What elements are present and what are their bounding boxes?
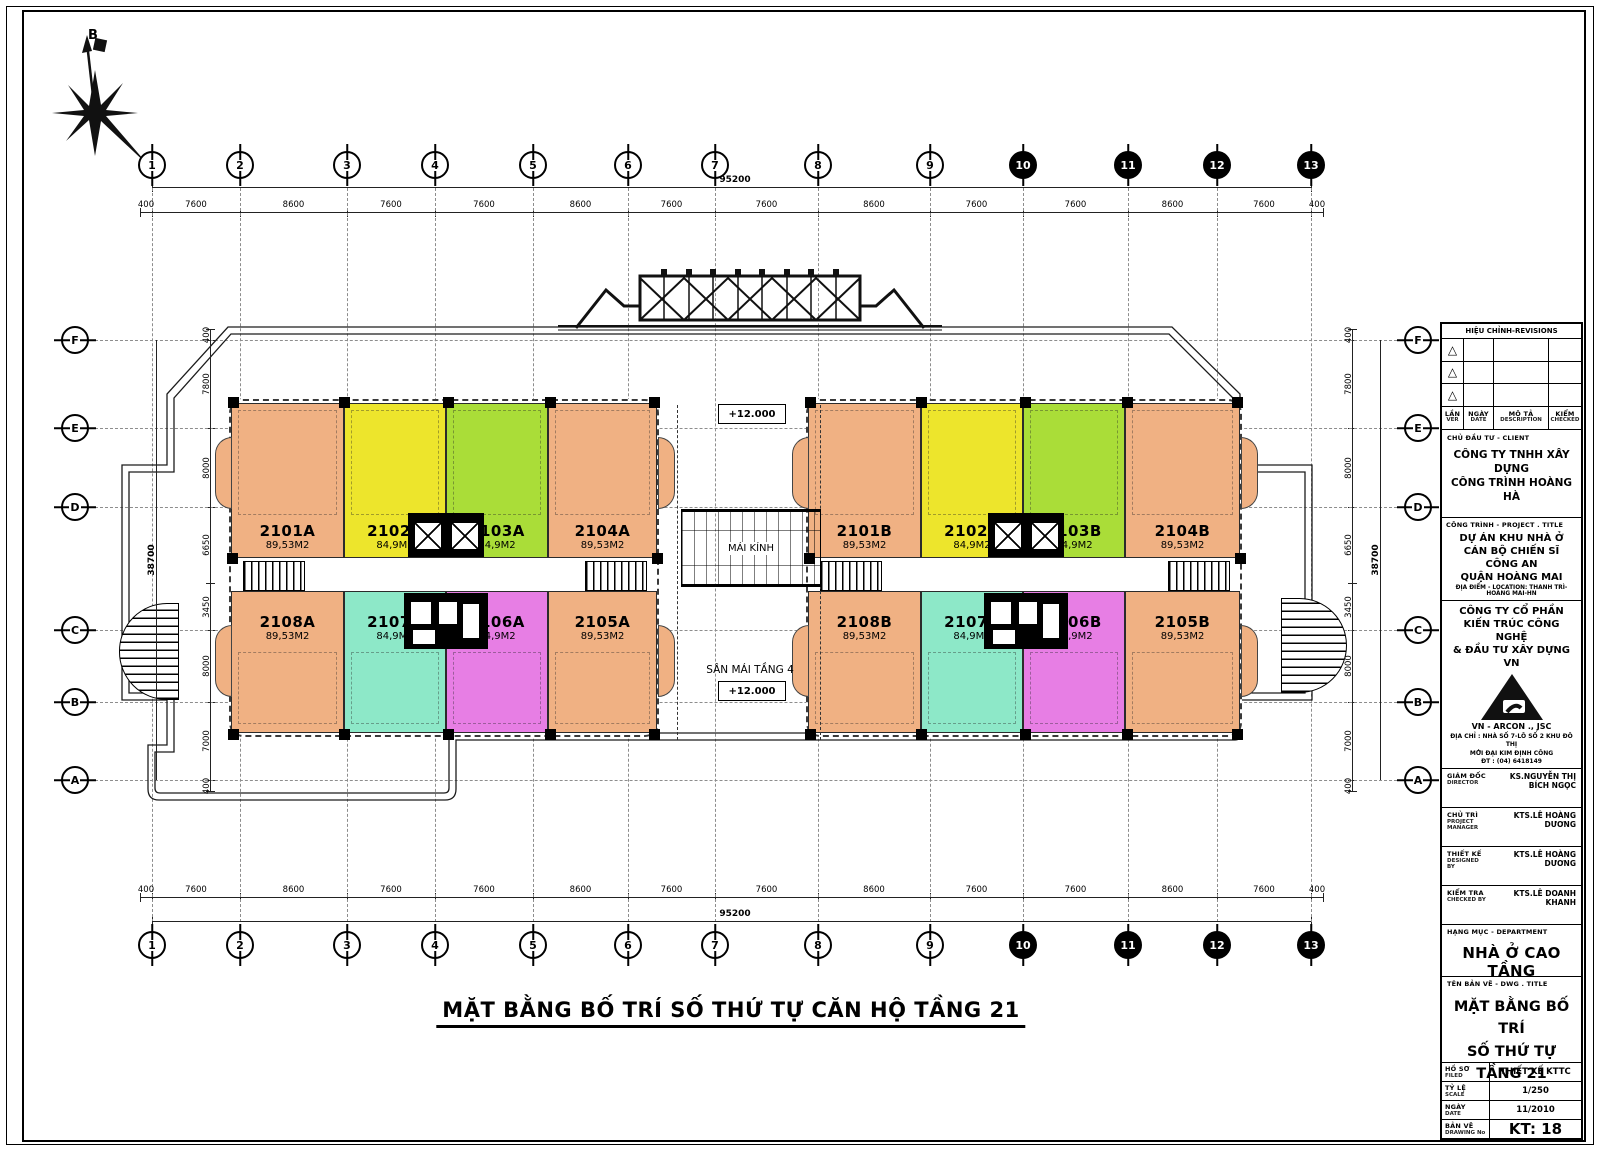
- unit-number: 2104A: [575, 523, 631, 540]
- bay-window: [792, 625, 809, 697]
- grid-bubble-2: 2: [226, 151, 254, 179]
- grid-bubble-3: 3: [333, 931, 361, 959]
- north-label: B: [88, 28, 98, 43]
- footer-drawing-no-value: KT: 18: [1490, 1120, 1581, 1138]
- grid-bubble-label: C: [1413, 625, 1423, 636]
- revision-triangle-icon: △: [1442, 384, 1464, 406]
- revision-table: HIỆU CHỈNH-REVISIONS △ △ △ LẦNVER NGÀYDA…: [1442, 324, 1581, 430]
- dimension-label: 7600: [185, 200, 207, 210]
- service-core: [984, 593, 1068, 649]
- dimension-label: 8000: [202, 655, 212, 677]
- grid-bubble-label: A: [70, 775, 81, 786]
- bay-window: [215, 625, 232, 697]
- revision-row: △: [1442, 362, 1581, 385]
- grid-bubble-label: 10: [1014, 940, 1031, 951]
- architect-address: MỚI ĐẠI KIM ĐỊNH CÔNG: [1446, 750, 1577, 758]
- column-marker: [228, 397, 239, 408]
- unit-number: 2105B: [1155, 614, 1211, 631]
- grid-bubble-A: A: [61, 766, 89, 794]
- column-marker: [1122, 729, 1133, 740]
- revision-row: △: [1442, 339, 1581, 362]
- department-label: HẠNG MỤC - DEPARTMENT: [1447, 928, 1576, 936]
- grid-bubble-2: 2: [226, 931, 254, 959]
- grid-bubble-label: B: [70, 697, 80, 708]
- role-director-name: KS.NGUYỄN THỊ BÍCH NGỌC: [1488, 772, 1576, 804]
- dimension-label: 7600: [756, 885, 778, 895]
- grid-bubble-label: 2: [235, 940, 245, 951]
- grid-bubble-13: 13: [1297, 151, 1325, 179]
- service-room: [412, 629, 436, 645]
- glass-roof: MÁI KÍNH: [681, 509, 821, 587]
- north-arrow-icon: [30, 25, 160, 170]
- grid-bubble-label: 1: [147, 940, 157, 951]
- footer-date-value: 11/2010: [1490, 1101, 1581, 1119]
- dimension-label: 3450: [202, 596, 212, 618]
- corridor-stair: [1168, 561, 1230, 591]
- grid-bubble-1: 1: [138, 151, 166, 179]
- glass-roof-line: [682, 565, 820, 566]
- dimension-label: 6650: [202, 534, 212, 556]
- grid-bubble-B: B: [61, 688, 89, 716]
- column-marker: [652, 553, 663, 564]
- department-value: NHÀ Ở CAO TẦNG: [1447, 944, 1576, 980]
- dimension-label: 6650: [1344, 534, 1354, 556]
- dimension-label: 8600: [863, 885, 885, 895]
- apartment-unit-2101B: 2101B89,53M2: [808, 403, 921, 558]
- grid-bubble-label: 7: [710, 940, 720, 951]
- drawing-title: MẶT BẰNG BỐ TRÍ SỐ THỨ TỰ CĂN HỘ TẦNG 21: [436, 998, 1025, 1028]
- grid-bubble-label: D: [69, 502, 80, 513]
- grid-bubble-label: 13: [1302, 160, 1319, 171]
- grid-bubble-label: F: [70, 335, 80, 346]
- level-marker-upper: +12.000: [718, 404, 786, 424]
- dimension-label: 7600: [1065, 200, 1087, 210]
- footer-date-row: NGÀYDATE 11/2010: [1442, 1101, 1581, 1120]
- roof-truss: [558, 268, 942, 334]
- grid-bubble-label: 5: [528, 940, 538, 951]
- dimension-label: 8000: [202, 457, 212, 479]
- dimension-label: 7600: [661, 200, 683, 210]
- dimension-line: [140, 897, 1323, 898]
- client-label: CHỦ ĐẦU TƯ - CLIENT: [1447, 434, 1576, 442]
- dimension-label: 8600: [570, 200, 592, 210]
- dimension-label: 7600: [756, 200, 778, 210]
- grid-bubble-label: F: [1413, 335, 1423, 346]
- elevator-shaft: [1030, 521, 1060, 551]
- grid-bubble-label: 3: [342, 160, 352, 171]
- unit-area: 89,53M2: [266, 631, 310, 643]
- unit-area: 89,53M2: [266, 540, 310, 552]
- grid-bubble-D: D: [1404, 493, 1432, 521]
- grid-bubble-4: 4: [421, 931, 449, 959]
- dimension-label: 400: [1344, 326, 1354, 342]
- grid-bubble-label: 11: [1119, 160, 1136, 171]
- grid-bubble-A: A: [1404, 766, 1432, 794]
- dimension-label: 400: [202, 326, 212, 342]
- company-logo: [1481, 674, 1543, 720]
- apartment-unit-2108A: 2108A89,53M2: [231, 591, 344, 733]
- column-marker: [649, 397, 660, 408]
- dimension-label: 8600: [1162, 200, 1184, 210]
- grid-bubble-E: E: [61, 414, 89, 442]
- dimension-label: 3450: [1344, 596, 1354, 618]
- client-section: CHỦ ĐẦU TƯ - CLIENT CÔNG TY TNHH XÂY DỰN…: [1442, 430, 1581, 518]
- elevator-shaft: [993, 521, 1023, 551]
- grid-bubble-label: 4: [430, 160, 440, 171]
- grid-bubble-label: 13: [1302, 940, 1319, 951]
- architect-name: CÔNG TY CỔ PHẦN: [1446, 605, 1577, 618]
- column-marker: [443, 729, 454, 740]
- unit-number: 2105A: [575, 614, 631, 631]
- role-designer: THIẾT KẾDESIGNED BY KTS.LÊ HOÀNG DƯƠNG: [1442, 847, 1581, 886]
- grid-bubble-label: 9: [925, 940, 935, 951]
- grid-bubble-5: 5: [519, 151, 547, 179]
- grid-bubble-label: 10: [1014, 160, 1031, 171]
- corridor-stair: [585, 561, 647, 591]
- column-marker: [545, 729, 556, 740]
- dimension-label: 400: [202, 777, 212, 793]
- grid-bubble-F: F: [61, 326, 89, 354]
- dimension-label: 8600: [863, 200, 885, 210]
- unit-area: 89,53M2: [843, 631, 887, 643]
- service-room: [462, 603, 480, 639]
- glass-roof-line: [682, 530, 820, 531]
- dimension-label: 7600: [185, 885, 207, 895]
- grid-bubble-label: 1: [147, 160, 157, 171]
- grid-bubble-label: 6: [623, 160, 633, 171]
- grid-bubble-5: 5: [519, 931, 547, 959]
- dimension-label: 400: [1344, 777, 1354, 793]
- architect-address: ĐT : (04) 6418149: [1446, 758, 1577, 766]
- grid-bubble-label: 9: [925, 160, 935, 171]
- grid-bubble-8: 8: [804, 151, 832, 179]
- revision-triangle-icon: △: [1442, 339, 1464, 361]
- footer-scale-row: TỶ LỆSCALE 1/250: [1442, 1082, 1581, 1101]
- dimension-label: 8600: [570, 885, 592, 895]
- unit-number: 2108B: [837, 614, 893, 631]
- dimension-line-total: [152, 187, 1311, 188]
- corridor-edge-left: [677, 405, 678, 740]
- dimension-label: 7600: [473, 885, 495, 895]
- grid-bubble-label: B: [1413, 697, 1423, 708]
- unit-area: 89,53M2: [1161, 540, 1205, 552]
- grid-bubble-11: 11: [1114, 151, 1142, 179]
- elevator-shaft: [413, 521, 443, 551]
- unit-number: 2101B: [837, 523, 893, 540]
- dimension-label: 7600: [1253, 200, 1275, 210]
- grid-bubble-10: 10: [1009, 151, 1037, 179]
- client-name: CÔNG TY TNHH XÂY DỰNG: [1447, 448, 1576, 476]
- grid-bubble-9: 9: [916, 931, 944, 959]
- dimension-line: [140, 212, 1323, 213]
- dimension-label: 7600: [1065, 885, 1087, 895]
- grid-bubble-C: C: [1404, 616, 1432, 644]
- column-marker: [916, 397, 927, 408]
- dimension-label: 7600: [966, 200, 988, 210]
- column-marker: [805, 397, 816, 408]
- dwg-label: TÊN BẢN VẼ - DWG . TITLE: [1447, 980, 1576, 988]
- unit-area: 89,53M2: [581, 540, 625, 552]
- service-room: [1042, 603, 1060, 639]
- grid-bubble-label: E: [1413, 423, 1423, 434]
- apartment-unit-2101A: 2101A89,53M2: [231, 403, 344, 558]
- grid-bubble-label: 12: [1208, 940, 1225, 951]
- dimension-label: 8000: [1344, 457, 1354, 479]
- elevator-core: [408, 513, 484, 557]
- project-name: DỰ ÁN KHU NHÀ Ở: [1446, 532, 1577, 545]
- role-project-manager-name: KTS.LÊ HOÀNG DƯƠNG: [1496, 811, 1576, 843]
- bay-window: [1241, 437, 1258, 509]
- grid-bubble-9: 9: [916, 151, 944, 179]
- role-checker-name: KTS.LÊ DOANH KHANH: [1488, 889, 1576, 921]
- unit-area: 89,53M2: [581, 631, 625, 643]
- grid-bubble-label: 8: [813, 940, 823, 951]
- grid-bubble-label: 11: [1119, 940, 1136, 951]
- bay-window: [658, 625, 675, 697]
- revision-triangle-icon: △: [1442, 362, 1464, 384]
- footer-file-value: THIẾT KẾ KTTC: [1490, 1063, 1581, 1081]
- column-marker: [1122, 397, 1133, 408]
- service-room: [410, 601, 432, 625]
- project-label: CÔNG TRÌNH - PROJECT . TITLE: [1446, 521, 1577, 529]
- project-section: CÔNG TRÌNH - PROJECT . TITLE DỰ ÁN KHU N…: [1442, 518, 1581, 602]
- dimension-label: 7600: [661, 885, 683, 895]
- dimension-label: 7600: [966, 885, 988, 895]
- dimension-label: 400: [1309, 200, 1325, 210]
- bay-window: [215, 437, 232, 509]
- project-location: ĐỊA ĐIỂM - LOCATION: THANH TRÌ-HOÀNG MAI…: [1446, 585, 1577, 597]
- grid-bubble-6: 6: [614, 931, 642, 959]
- grid-bubble-10: 10: [1009, 931, 1037, 959]
- revision-row: △: [1442, 384, 1581, 407]
- grid-bubble-12: 12: [1203, 151, 1231, 179]
- grid-bubble-3: 3: [333, 151, 361, 179]
- dimension-label: 95200: [719, 175, 750, 185]
- level-marker-lower: +12.000: [718, 681, 786, 701]
- service-core: [404, 593, 488, 649]
- grid-bubble-label: D: [1412, 502, 1423, 513]
- grid-bubble-label: C: [70, 625, 80, 636]
- footer-drawing-no-row: BẢN VẼDRAWING No KT: 18: [1442, 1120, 1581, 1138]
- unit-area: 89,53M2: [843, 540, 887, 552]
- dimension-label: 400: [138, 885, 154, 895]
- unit-area: 84,9M2: [953, 540, 990, 552]
- apartment-block-B: 2101B89,53M22102B84,9M22103B84,9M22104B8…: [806, 399, 1242, 737]
- elevator-shaft: [450, 521, 480, 551]
- grid-bubble-label: A: [1413, 775, 1424, 786]
- unit-area: 89,53M2: [1161, 631, 1205, 643]
- role-director: GIÁM ĐỐCDIRECTOR KS.NGUYỄN THỊ BÍCH NGỌC: [1442, 769, 1581, 808]
- project-name: QUẬN HOÀNG MAI: [1446, 571, 1577, 584]
- dimension-label: 8600: [283, 200, 305, 210]
- glass-roof-label: MÁI KÍNH: [724, 542, 778, 555]
- column-marker: [339, 397, 350, 408]
- dimension-label: 7600: [380, 200, 402, 210]
- role-checker: KIỂM TRACHECKED BY KTS.LÊ DOANH KHANH: [1442, 886, 1581, 925]
- column-marker: [805, 729, 816, 740]
- department-section: HẠNG MỤC - DEPARTMENT NHÀ Ở CAO TẦNG: [1442, 925, 1581, 977]
- grid-bubble-label: 4: [430, 940, 440, 951]
- grid-bubble-7: 7: [701, 931, 729, 959]
- dimension-line-total: [152, 921, 1311, 922]
- unit-number: 2101A: [260, 523, 316, 540]
- service-room: [1018, 601, 1038, 625]
- column-marker: [443, 397, 454, 408]
- unit-number: 2108A: [260, 614, 316, 631]
- grid-bubble-D: D: [61, 493, 89, 521]
- bay-window: [1241, 625, 1258, 697]
- grid-bubble-B: B: [1404, 688, 1432, 716]
- column-marker: [1020, 729, 1031, 740]
- client-name: CÔNG TRÌNH HOÀNG HÀ: [1447, 476, 1576, 504]
- corridor-stair: [243, 561, 305, 591]
- grid-bubble-12: 12: [1203, 931, 1231, 959]
- dimension-label: 38700: [1371, 544, 1381, 575]
- level-value: +12.000: [729, 686, 776, 697]
- service-room: [992, 629, 1016, 645]
- project-name: CÁN BỘ CHIẾN SĨ CÔNG AN: [1446, 545, 1577, 571]
- title-block: HIỆU CHỈNH-REVISIONS △ △ △ LẦNVER NGÀYDA…: [1440, 322, 1583, 1140]
- dimension-line: [1352, 329, 1353, 791]
- dimension-label: 8600: [283, 885, 305, 895]
- elevator-core: [988, 513, 1064, 557]
- column-marker: [649, 729, 660, 740]
- architect-name: KIẾN TRÚC CÔNG NGHỆ: [1446, 618, 1577, 644]
- apartment-unit-2105B: 2105B89,53M2: [1125, 591, 1240, 733]
- dimension-label: 7800: [1344, 373, 1354, 395]
- apartment-unit-2104A: 2104A89,53M2: [548, 403, 657, 558]
- footer-file-row: HỒ SƠFILED THIẾT KẾ KTTC: [1442, 1063, 1581, 1082]
- dimension-label: 400: [138, 200, 154, 210]
- dimension-label: 400: [1309, 885, 1325, 895]
- unit-number: 2104B: [1155, 523, 1211, 540]
- dimension-label: 7800: [202, 373, 212, 395]
- grid-bubble-F: F: [1404, 326, 1432, 354]
- dimension-label: 8000: [1344, 655, 1354, 677]
- dimension-line: [210, 329, 211, 791]
- column-marker: [1020, 397, 1031, 408]
- column-marker: [1235, 553, 1246, 564]
- column-marker: [545, 397, 556, 408]
- bay-window: [658, 437, 675, 509]
- dimension-label: 7600: [380, 885, 402, 895]
- dimension-label: 7600: [1253, 885, 1275, 895]
- grid-bubble-4: 4: [421, 151, 449, 179]
- column-marker: [339, 729, 350, 740]
- grid-bubble-13: 13: [1297, 931, 1325, 959]
- grid-bubble-6: 6: [614, 151, 642, 179]
- grid-bubble-label: 8: [813, 160, 823, 171]
- titleblock-footer: HỒ SƠFILED THIẾT KẾ KTTC TỶ LỆSCALE 1/25…: [1442, 1063, 1581, 1138]
- role-project-manager: CHỦ TRÌPROJECT MANAGER KTS.LÊ HOÀNG DƯƠN…: [1442, 808, 1581, 847]
- apartment-unit-2104B: 2104B89,53M2: [1125, 403, 1240, 558]
- grid-bubble-label: 5: [528, 160, 538, 171]
- service-room: [990, 601, 1012, 625]
- dimension-label: 8600: [1162, 885, 1184, 895]
- revision-title: HIỆU CHỈNH-REVISIONS: [1442, 324, 1581, 339]
- column-marker: [1232, 729, 1243, 740]
- grid-bubble-label: E: [70, 423, 80, 434]
- column-marker: [916, 729, 927, 740]
- apartment-unit-2108B: 2108B89,53M2: [808, 591, 921, 733]
- corridor-stair: [820, 561, 882, 591]
- column-marker: [227, 553, 238, 564]
- terrace-label: SÂN MÁI TẦNG 4: [668, 664, 832, 676]
- architect-section: CÔNG TY CỔ PHẦN KIẾN TRÚC CÔNG NGHỆ & ĐẦ…: [1442, 601, 1581, 769]
- role-designer-name: KTS.LÊ HOÀNG DƯƠNG: [1488, 850, 1576, 882]
- grid-bubble-label: 12: [1208, 160, 1225, 171]
- dimension-label: 38700: [147, 544, 157, 575]
- dimension-label: 95200: [719, 909, 750, 919]
- apartment-unit-2105A: 2105A89,53M2: [548, 591, 657, 733]
- architect-name: & ĐẦU TƯ XÂY DỰNG VN: [1446, 644, 1577, 670]
- column-marker: [1232, 397, 1243, 408]
- dimension-label: 7000: [202, 730, 212, 752]
- footer-scale-value: 1/250: [1490, 1082, 1581, 1100]
- grid-bubble-label: 7: [710, 160, 720, 171]
- grid-bubble-label: 3: [342, 940, 352, 951]
- bay-window: [792, 437, 809, 509]
- grid-bubble-C: C: [61, 616, 89, 644]
- dimension-label: 7600: [473, 200, 495, 210]
- grid-bubble-E: E: [1404, 414, 1432, 442]
- grid-bubble-label: 2: [235, 160, 245, 171]
- apartment-block-A: 2101A89,53M22102A84,9M22103A84,9M22104A8…: [229, 399, 659, 737]
- drawing-title-section: TÊN BẢN VẼ - DWG . TITLE MẶT BẰNG BỐ TRÍ…: [1442, 977, 1581, 1063]
- grid-bubble-1: 1: [138, 931, 166, 959]
- dimension-label: 7000: [1344, 730, 1354, 752]
- architect-address: ĐỊA CHỈ : NHÀ SỐ 7-LÔ SỐ 2 KHU ĐÔ THỊ: [1446, 733, 1577, 749]
- grid-bubble-11: 11: [1114, 931, 1142, 959]
- architect-short-name: VN - ARCON ., JSC: [1446, 722, 1577, 731]
- level-value: +12.000: [729, 409, 776, 420]
- drawing-sheet: B: [0, 0, 1600, 1151]
- column-marker: [228, 729, 239, 740]
- dwg-title: MẶT BẰNG BỐ TRÍ: [1447, 996, 1576, 1041]
- revision-header-row: LẦNVER NGÀYDATE MÔ TẢDESCRIPTION KIỂMCHE…: [1442, 407, 1581, 429]
- service-room: [438, 601, 458, 625]
- grid-bubble-7: 7: [701, 151, 729, 179]
- grid-bubble-8: 8: [804, 931, 832, 959]
- grid-bubble-label: 6: [623, 940, 633, 951]
